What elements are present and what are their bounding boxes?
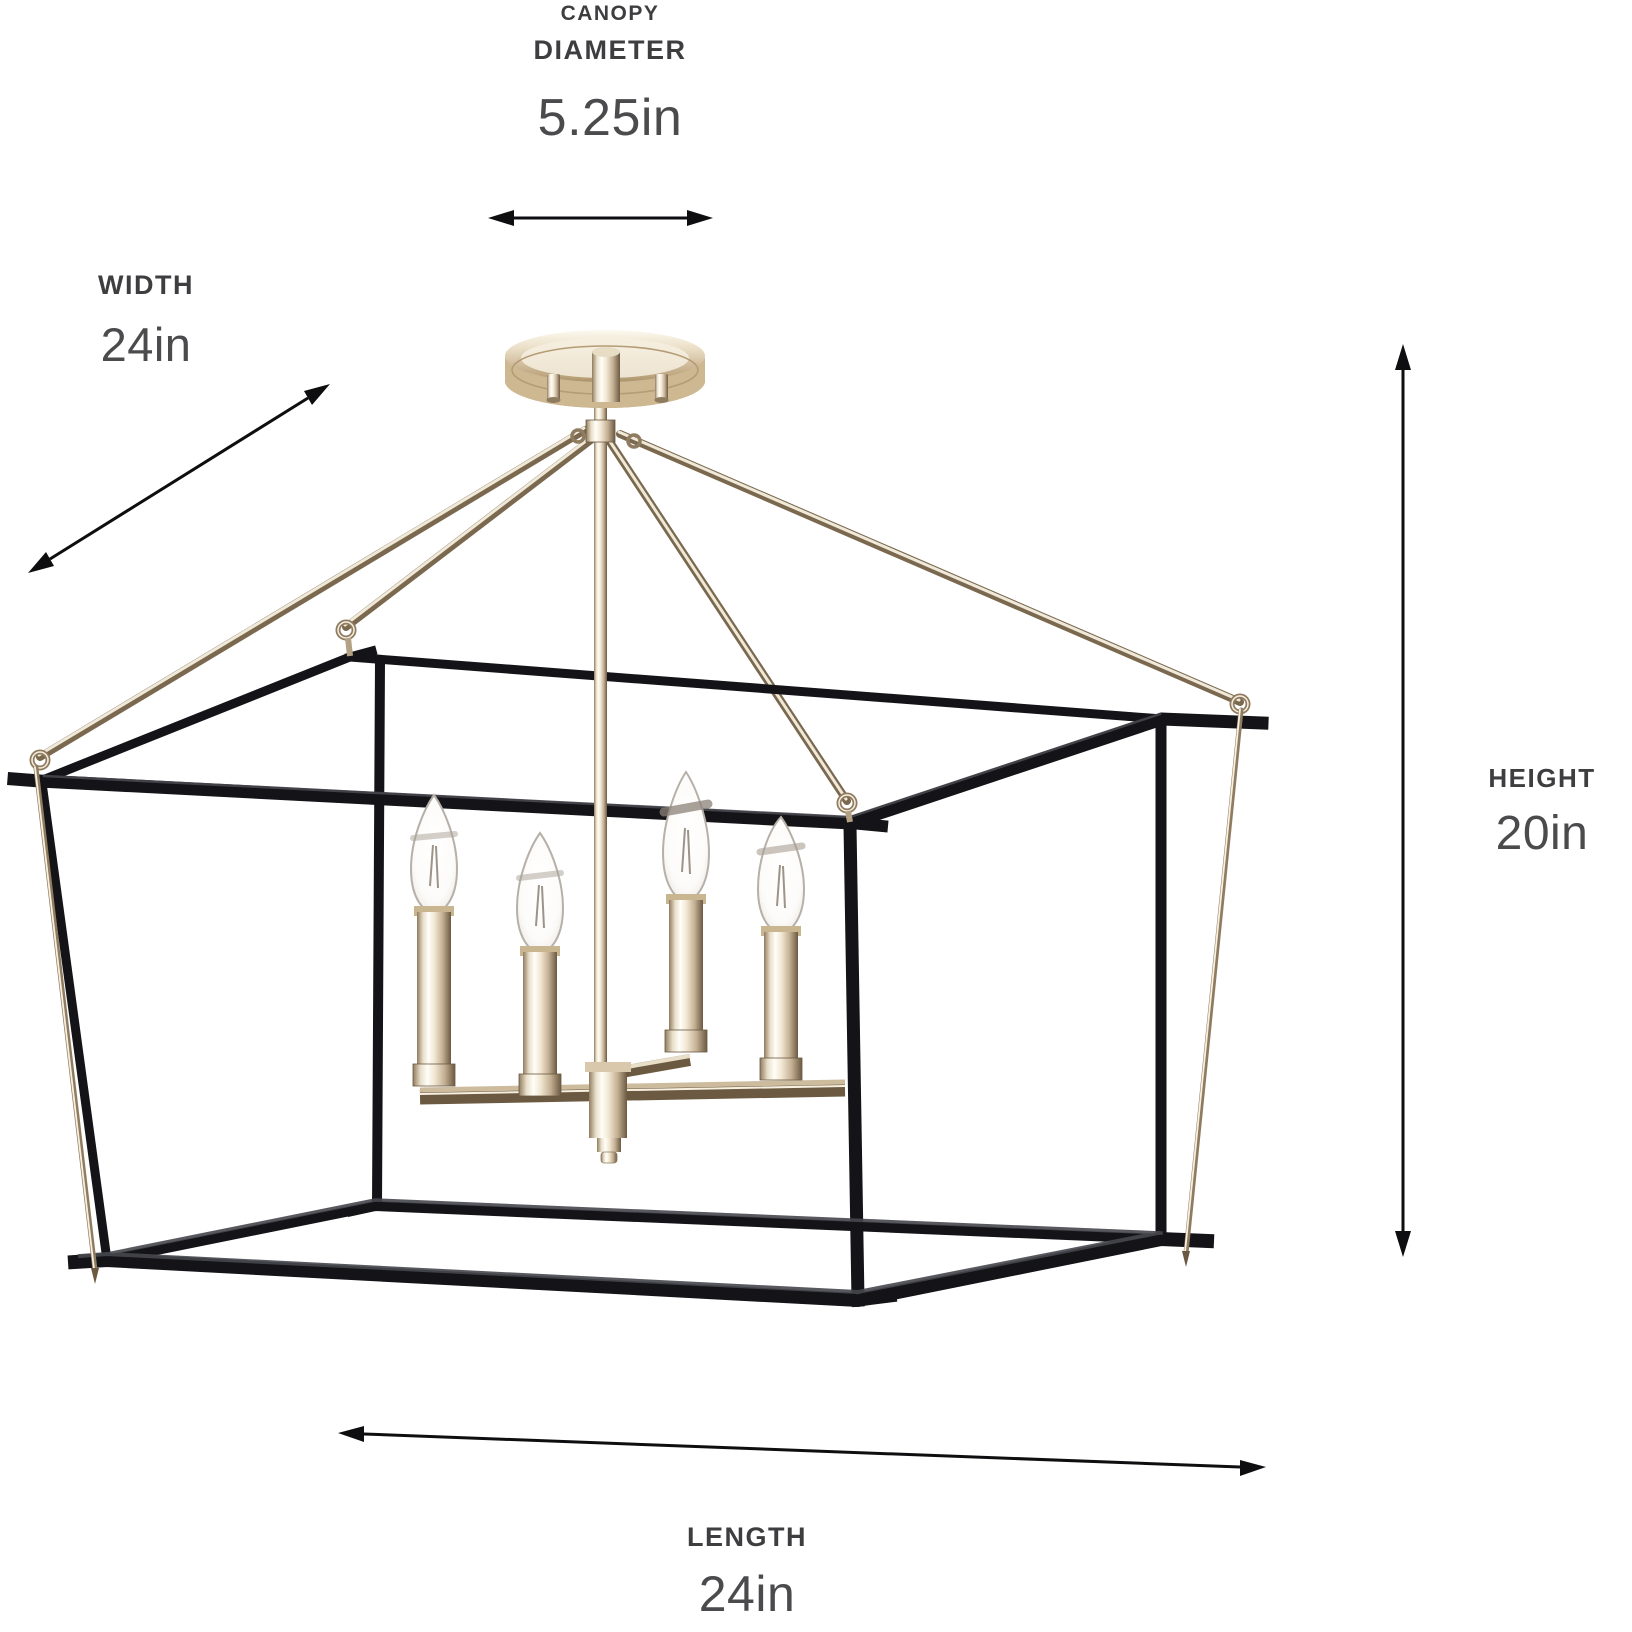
- height-label: HEIGHT: [1442, 764, 1632, 794]
- dimension-arrows: [50, 218, 1403, 1467]
- width-arrow: [50, 398, 308, 559]
- canopy-standoff-right: [655, 374, 668, 400]
- tension-rod-east: [1186, 710, 1241, 1253]
- fixture-illustration: [0, 0, 1632, 1632]
- top-rim-north-stub: [350, 651, 372, 657]
- canopy-dimension: CANOPY DIAMETER 5.25in: [428, 2, 792, 148]
- candle-bulb: [758, 817, 804, 932]
- post-west: [42, 783, 107, 1260]
- length-label: LENGTH: [638, 1522, 856, 1553]
- candle: [411, 795, 457, 1086]
- candle: [663, 772, 709, 1052]
- canopy-label-line2: DIAMETER: [428, 35, 792, 66]
- support-rod-west: [40, 430, 585, 757]
- cage-frame: [14, 651, 1262, 1300]
- candle-sleeve: [669, 900, 703, 1052]
- candle-bulb: [517, 833, 563, 952]
- ceiling-canopy: [505, 330, 705, 408]
- bottom-rim-south-stub: [858, 1296, 890, 1300]
- cluster-hub: [589, 1062, 627, 1138]
- length-value: 24in: [638, 1565, 856, 1623]
- canopy-label-line1: CANOPY: [428, 2, 792, 26]
- canopy-standoff-left: [547, 374, 560, 400]
- diagram-canvas: CANOPY DIAMETER 5.25in WIDTH 24in HEIGHT…: [0, 0, 1632, 1632]
- candle-bulb: [663, 772, 709, 900]
- post-north: [377, 661, 380, 1206]
- bottom-rim-front: [75, 1239, 1207, 1300]
- bottom-rim-north-stub: [352, 1206, 375, 1211]
- height-value: 20in: [1442, 806, 1632, 861]
- cluster-finial: [597, 1138, 621, 1152]
- candle: [517, 833, 563, 1096]
- bottom-rim-back: [107, 1206, 1161, 1260]
- candle: [758, 817, 804, 1080]
- width-value: 24in: [46, 317, 246, 372]
- candle-bulb: [411, 795, 457, 912]
- canopy-value: 5.25in: [428, 88, 792, 148]
- candle-sleeve: [417, 912, 451, 1086]
- height-dimension: HEIGHT 20in: [1442, 764, 1632, 861]
- length-dimension: LENGTH 24in: [638, 1522, 856, 1623]
- width-dimension: WIDTH 24in: [46, 270, 246, 372]
- width-label: WIDTH: [46, 270, 246, 301]
- support-rod-north: [346, 436, 596, 627]
- center-stem: [594, 398, 607, 1070]
- canopy-hub: [592, 352, 620, 402]
- canopy-support-rods-highlight: [39, 428, 1239, 799]
- length-arrow: [364, 1434, 1240, 1467]
